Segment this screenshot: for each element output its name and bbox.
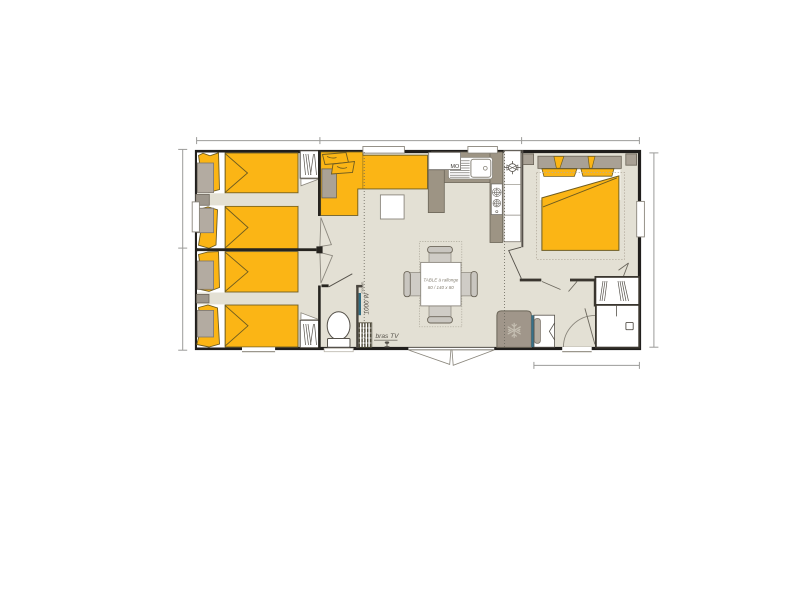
svg-text:80 / 140 x 80: 80 / 140 x 80	[428, 285, 455, 290]
svg-text:TABLE à rallonge: TABLE à rallonge	[423, 278, 458, 283]
svg-text:bras TV: bras TV	[376, 333, 400, 340]
svg-text:MO: MO	[451, 164, 460, 170]
